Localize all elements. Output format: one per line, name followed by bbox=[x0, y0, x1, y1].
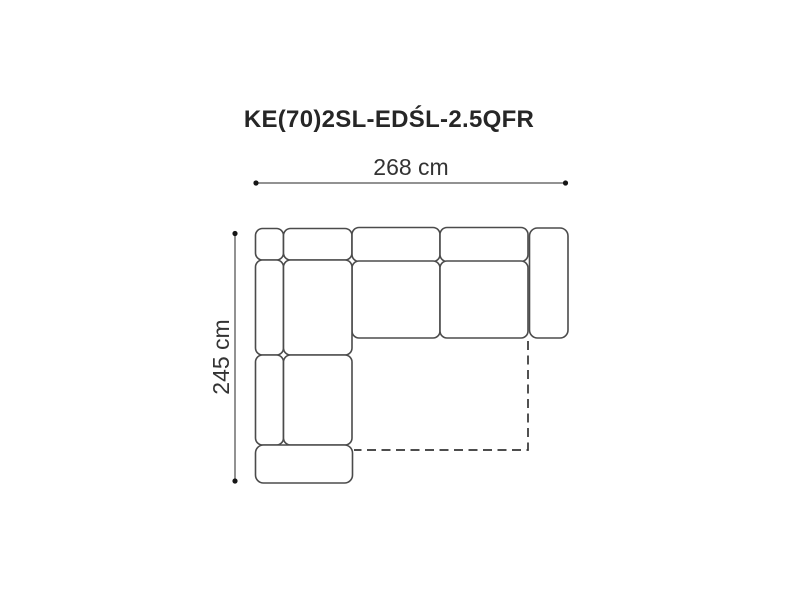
depth-dimension-start-dot bbox=[232, 231, 237, 236]
depth-dimension-end-dot bbox=[232, 478, 237, 483]
chaise-seat bbox=[284, 355, 353, 445]
bottom-armrest bbox=[256, 445, 353, 483]
right-armrest bbox=[530, 228, 569, 338]
sleeping-function-dashed-outline bbox=[354, 341, 528, 450]
back-cushion-1 bbox=[352, 228, 440, 262]
sofa-dimension-diagram: 268 cm 245 cm bbox=[0, 0, 800, 600]
width-dimension: 268 cm bbox=[253, 154, 568, 186]
corner-seat bbox=[284, 260, 353, 355]
sofa-outline bbox=[256, 228, 569, 484]
seat-cushion-2 bbox=[440, 261, 528, 338]
width-dimension-start-dot bbox=[253, 180, 258, 185]
left-backrest-upper bbox=[256, 260, 284, 355]
back-cushion-2 bbox=[440, 228, 528, 262]
left-backrest-lower bbox=[256, 355, 284, 445]
corner-backrest bbox=[284, 229, 353, 261]
width-dimension-end-dot bbox=[563, 180, 568, 185]
diagram-canvas: KE(70)2SL-EDŚL-2.5QFR 268 cm 245 cm bbox=[0, 0, 800, 600]
depth-dimension-label: 245 cm bbox=[208, 319, 234, 394]
width-dimension-label: 268 cm bbox=[373, 154, 448, 180]
seat-cushion-1 bbox=[352, 261, 440, 338]
corner-back-cushion bbox=[256, 229, 284, 261]
depth-dimension: 245 cm bbox=[208, 231, 238, 484]
